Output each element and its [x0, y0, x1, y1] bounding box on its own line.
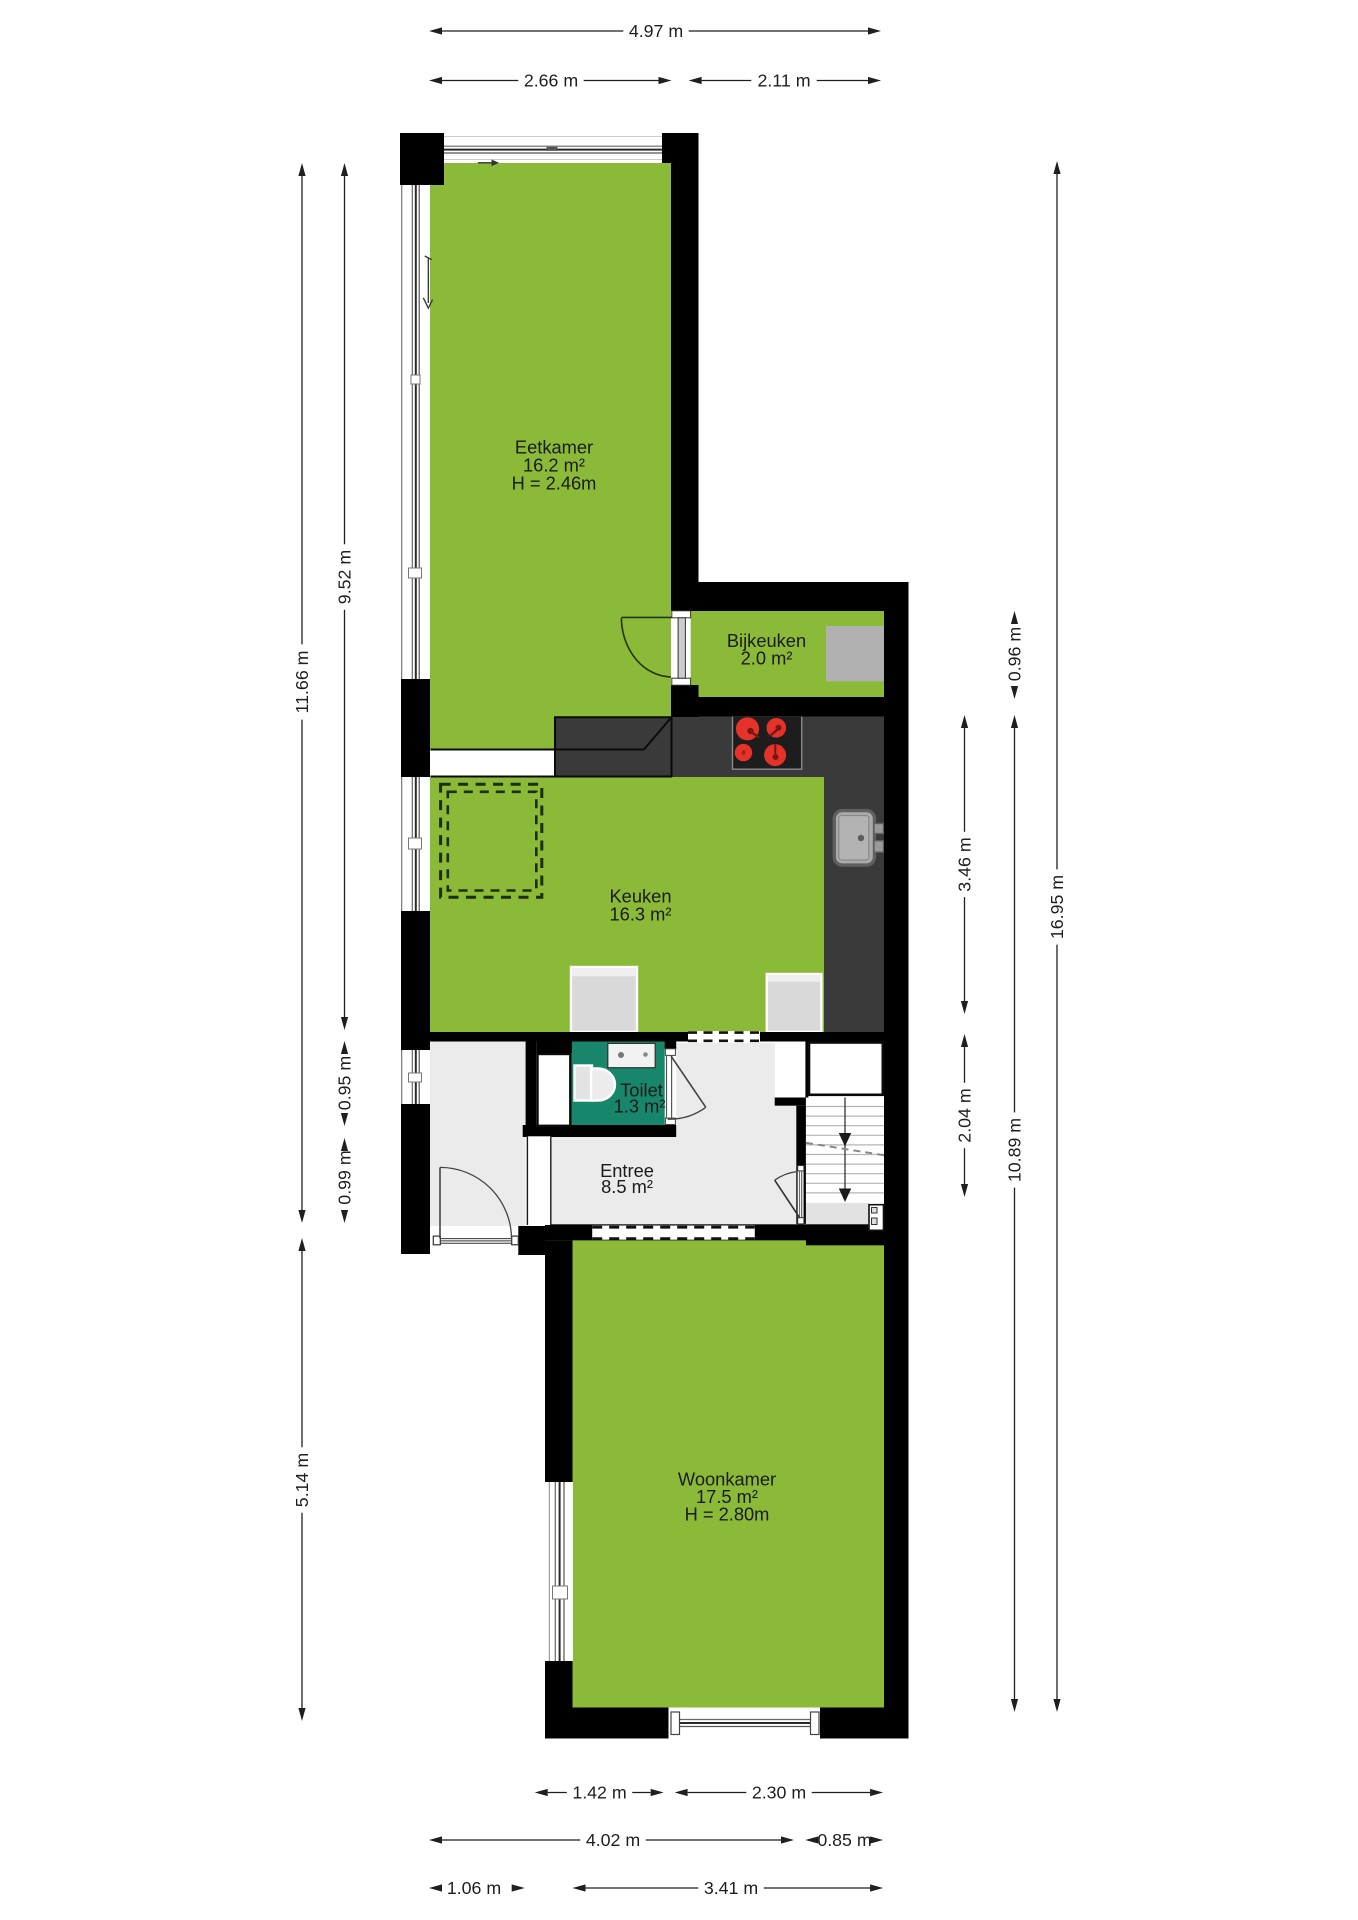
svg-text:8.5 m²: 8.5 m²	[601, 1176, 653, 1197]
svg-text:0.96 m: 0.96 m	[1005, 627, 1025, 681]
svg-text:5.14 m: 5.14 m	[292, 1453, 312, 1507]
svg-text:2.04 m: 2.04 m	[955, 1088, 975, 1142]
svg-text:2.66 m: 2.66 m	[524, 71, 578, 91]
svg-text:11.66 m: 11.66 m	[292, 651, 312, 714]
svg-text:3.41 m: 3.41 m	[704, 1878, 758, 1898]
svg-text:2.0 m²: 2.0 m²	[741, 648, 793, 669]
svg-text:H = 2.80m: H = 2.80m	[685, 1504, 770, 1525]
svg-text:2.11 m: 2.11 m	[757, 71, 810, 91]
svg-text:10.89 m: 10.89 m	[1005, 1118, 1025, 1182]
svg-text:H = 2.46m: H = 2.46m	[512, 473, 597, 494]
svg-text:1.42 m: 1.42 m	[572, 1783, 626, 1803]
svg-text:4.02 m: 4.02 m	[586, 1830, 640, 1850]
svg-text:16.95 m: 16.95 m	[1047, 875, 1067, 939]
svg-text:16.3 m²: 16.3 m²	[610, 904, 672, 925]
svg-text:1.3 m²: 1.3 m²	[614, 1096, 666, 1117]
svg-text:9.52 m: 9.52 m	[335, 550, 355, 604]
svg-text:3.46 m: 3.46 m	[955, 837, 975, 891]
svg-text:0.95 m: 0.95 m	[335, 1056, 355, 1110]
svg-text:4.97 m: 4.97 m	[629, 21, 683, 41]
svg-text:2.30 m: 2.30 m	[752, 1783, 806, 1803]
svg-text:1.06 m: 1.06 m	[447, 1878, 501, 1898]
svg-text:0.99 m: 0.99 m	[335, 1150, 355, 1204]
svg-text:0.85 m: 0.85 m	[817, 1830, 871, 1850]
